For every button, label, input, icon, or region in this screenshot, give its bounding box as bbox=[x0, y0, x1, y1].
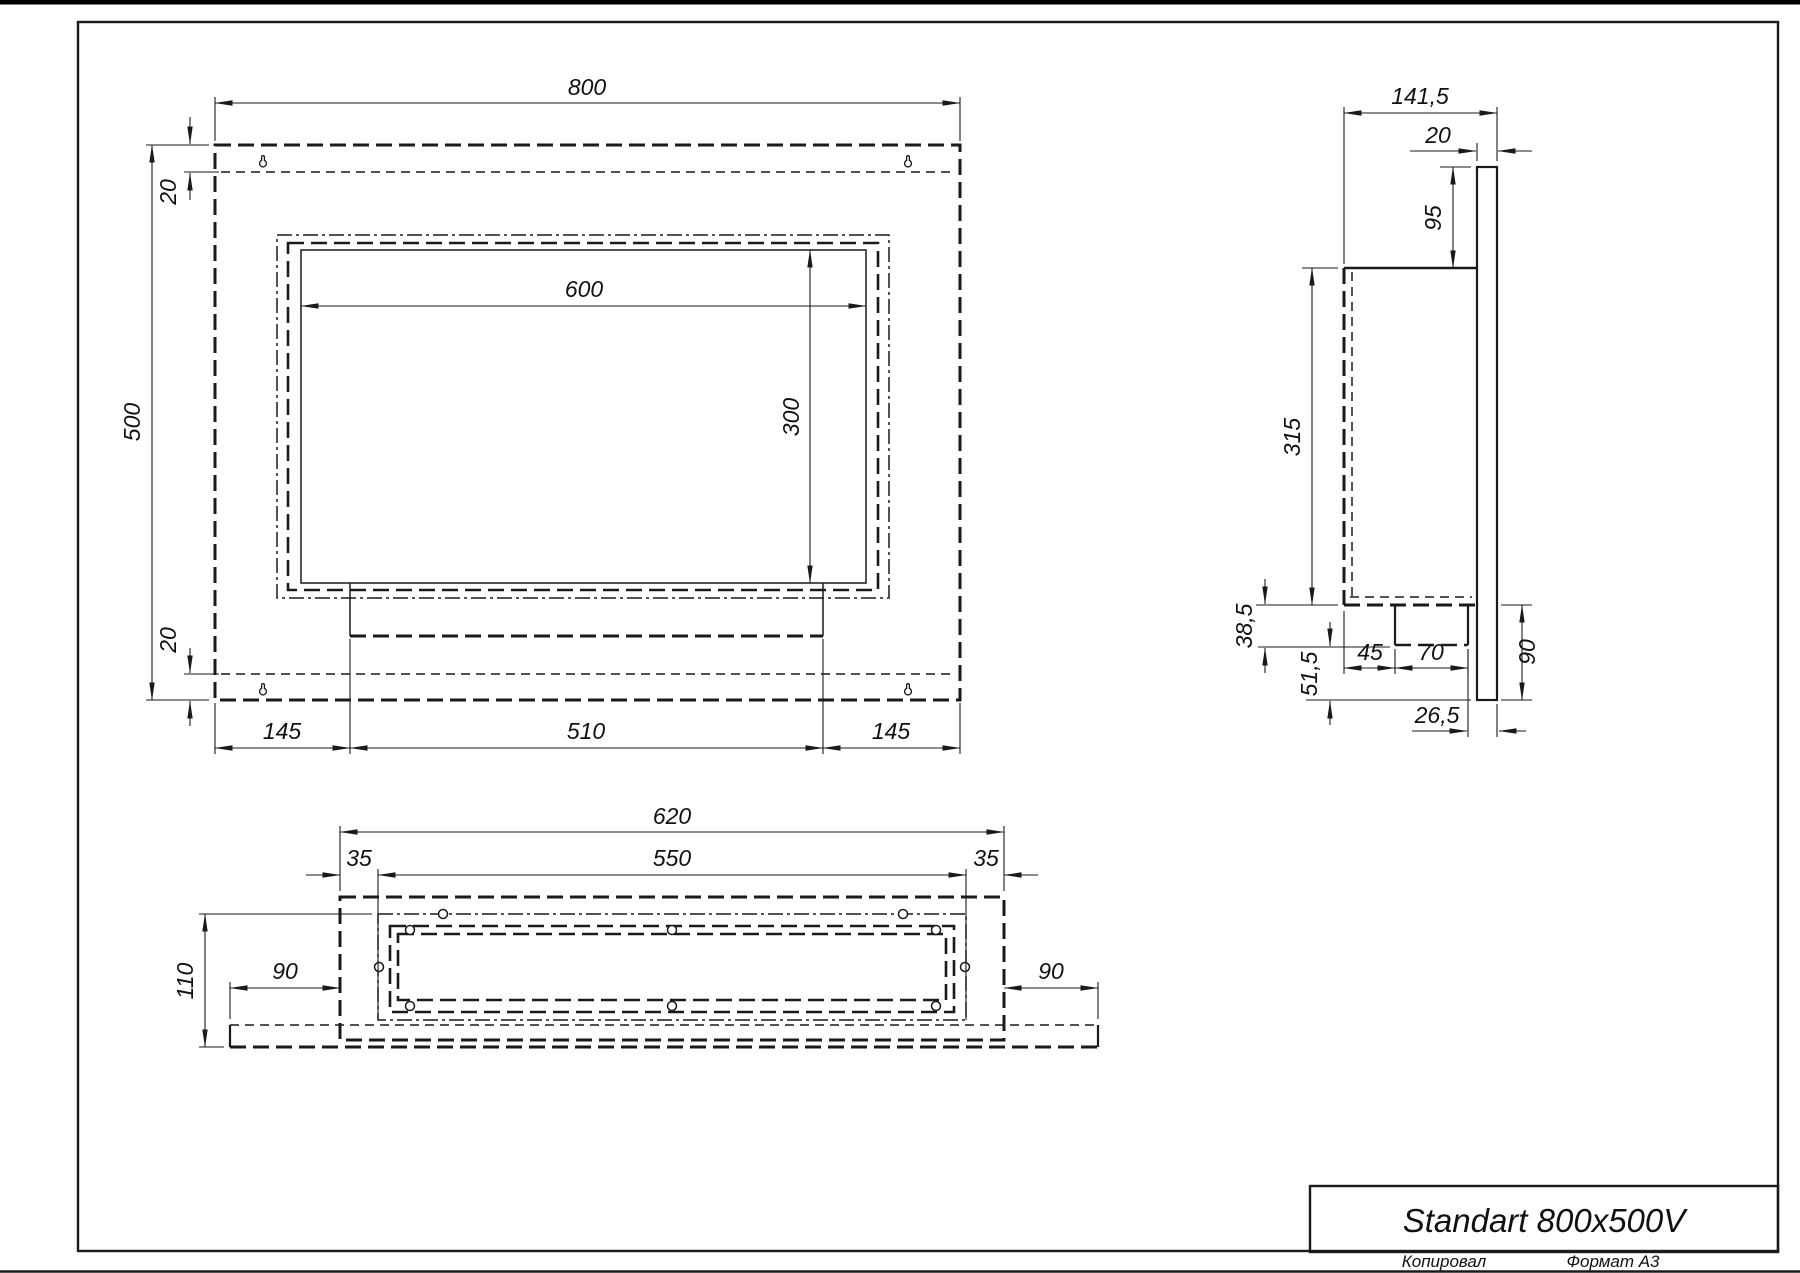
dim-side-tray-width: 70 bbox=[1418, 639, 1444, 665]
dim-front-opening-height: 300 bbox=[778, 398, 804, 437]
dim-side-overall-depth: 141,5 bbox=[1391, 83, 1449, 109]
dim-side-top-to-box: 95 bbox=[1420, 205, 1446, 231]
dim-side-lower-flange: 51,5 bbox=[1296, 651, 1322, 696]
bottom-opening-inner-rect bbox=[398, 934, 946, 1000]
screw-hole bbox=[932, 926, 941, 935]
screw-hole bbox=[961, 963, 970, 972]
bottom-view: 620 35 550 35 110 90 90 bbox=[172, 803, 1098, 1047]
keyhole-icon bbox=[260, 684, 267, 695]
side-view: 141,5 20 95 315 38,5 51,5 45 70 bbox=[1231, 83, 1540, 737]
screw-hole bbox=[668, 926, 677, 935]
dim-side-back-gap: 26,5 bbox=[1414, 702, 1460, 728]
screw-hole bbox=[406, 926, 415, 935]
screw-hole bbox=[406, 1002, 415, 1011]
copied-label: Копировал bbox=[1402, 1252, 1487, 1271]
dim-bottom-depth: 110 bbox=[172, 962, 198, 999]
sheet-border bbox=[78, 22, 1778, 1251]
title-block: Standart 800x500V Копировал Формат A3 bbox=[1310, 1186, 1778, 1271]
top-black-bar bbox=[0, 0, 1800, 5]
dim-bottom-flange-right: 90 bbox=[1038, 958, 1064, 984]
dim-front-bottom-left: 145 bbox=[263, 718, 302, 744]
dim-bottom-flange-left: 90 bbox=[272, 958, 298, 984]
keyhole-icon bbox=[260, 156, 267, 167]
dim-front-burner-width: 510 bbox=[567, 718, 606, 744]
drawing-canvas: 800 500 20 20 600 300 145 510 145 bbox=[0, 0, 1800, 1273]
dim-side-tray-drop: 38,5 bbox=[1231, 603, 1257, 648]
dim-front-top-flange: 20 bbox=[155, 179, 181, 206]
drawing-title: Standart 800x500V bbox=[1403, 1202, 1689, 1239]
dim-bottom-margin-right: 35 bbox=[973, 845, 999, 871]
dim-side-flange-height: 90 bbox=[1514, 639, 1540, 665]
dim-side-tray-inset: 45 bbox=[1357, 639, 1383, 665]
dim-front-overall-width: 800 bbox=[568, 74, 607, 100]
screw-hole bbox=[932, 1002, 941, 1011]
screw-hole bbox=[899, 910, 908, 919]
dim-bottom-opening-width: 550 bbox=[653, 845, 692, 871]
dim-front-bottom-flange: 20 bbox=[155, 627, 181, 654]
dim-front-bottom-right: 145 bbox=[872, 718, 911, 744]
dim-side-box-height: 315 bbox=[1279, 418, 1305, 457]
screw-hole bbox=[668, 1002, 677, 1011]
keyhole-icon bbox=[905, 684, 912, 695]
drawing-sheet: 800 500 20 20 600 300 145 510 145 bbox=[0, 0, 1800, 1273]
front-view: 800 500 20 20 600 300 145 510 145 bbox=[119, 74, 960, 754]
front-plate-outline bbox=[215, 145, 960, 700]
format-label: Формат A3 bbox=[1566, 1252, 1660, 1271]
dim-front-overall-height: 500 bbox=[119, 403, 145, 442]
screw-hole bbox=[439, 910, 448, 919]
dim-side-plate-thickness: 20 bbox=[1424, 122, 1451, 148]
dim-bottom-box-width: 620 bbox=[653, 803, 692, 829]
screw-hole bbox=[375, 963, 384, 972]
dim-bottom-margin-left: 35 bbox=[346, 845, 372, 871]
side-plate-outline bbox=[1477, 167, 1497, 700]
dim-front-opening-width: 600 bbox=[565, 276, 604, 302]
keyhole-icon bbox=[905, 156, 912, 167]
